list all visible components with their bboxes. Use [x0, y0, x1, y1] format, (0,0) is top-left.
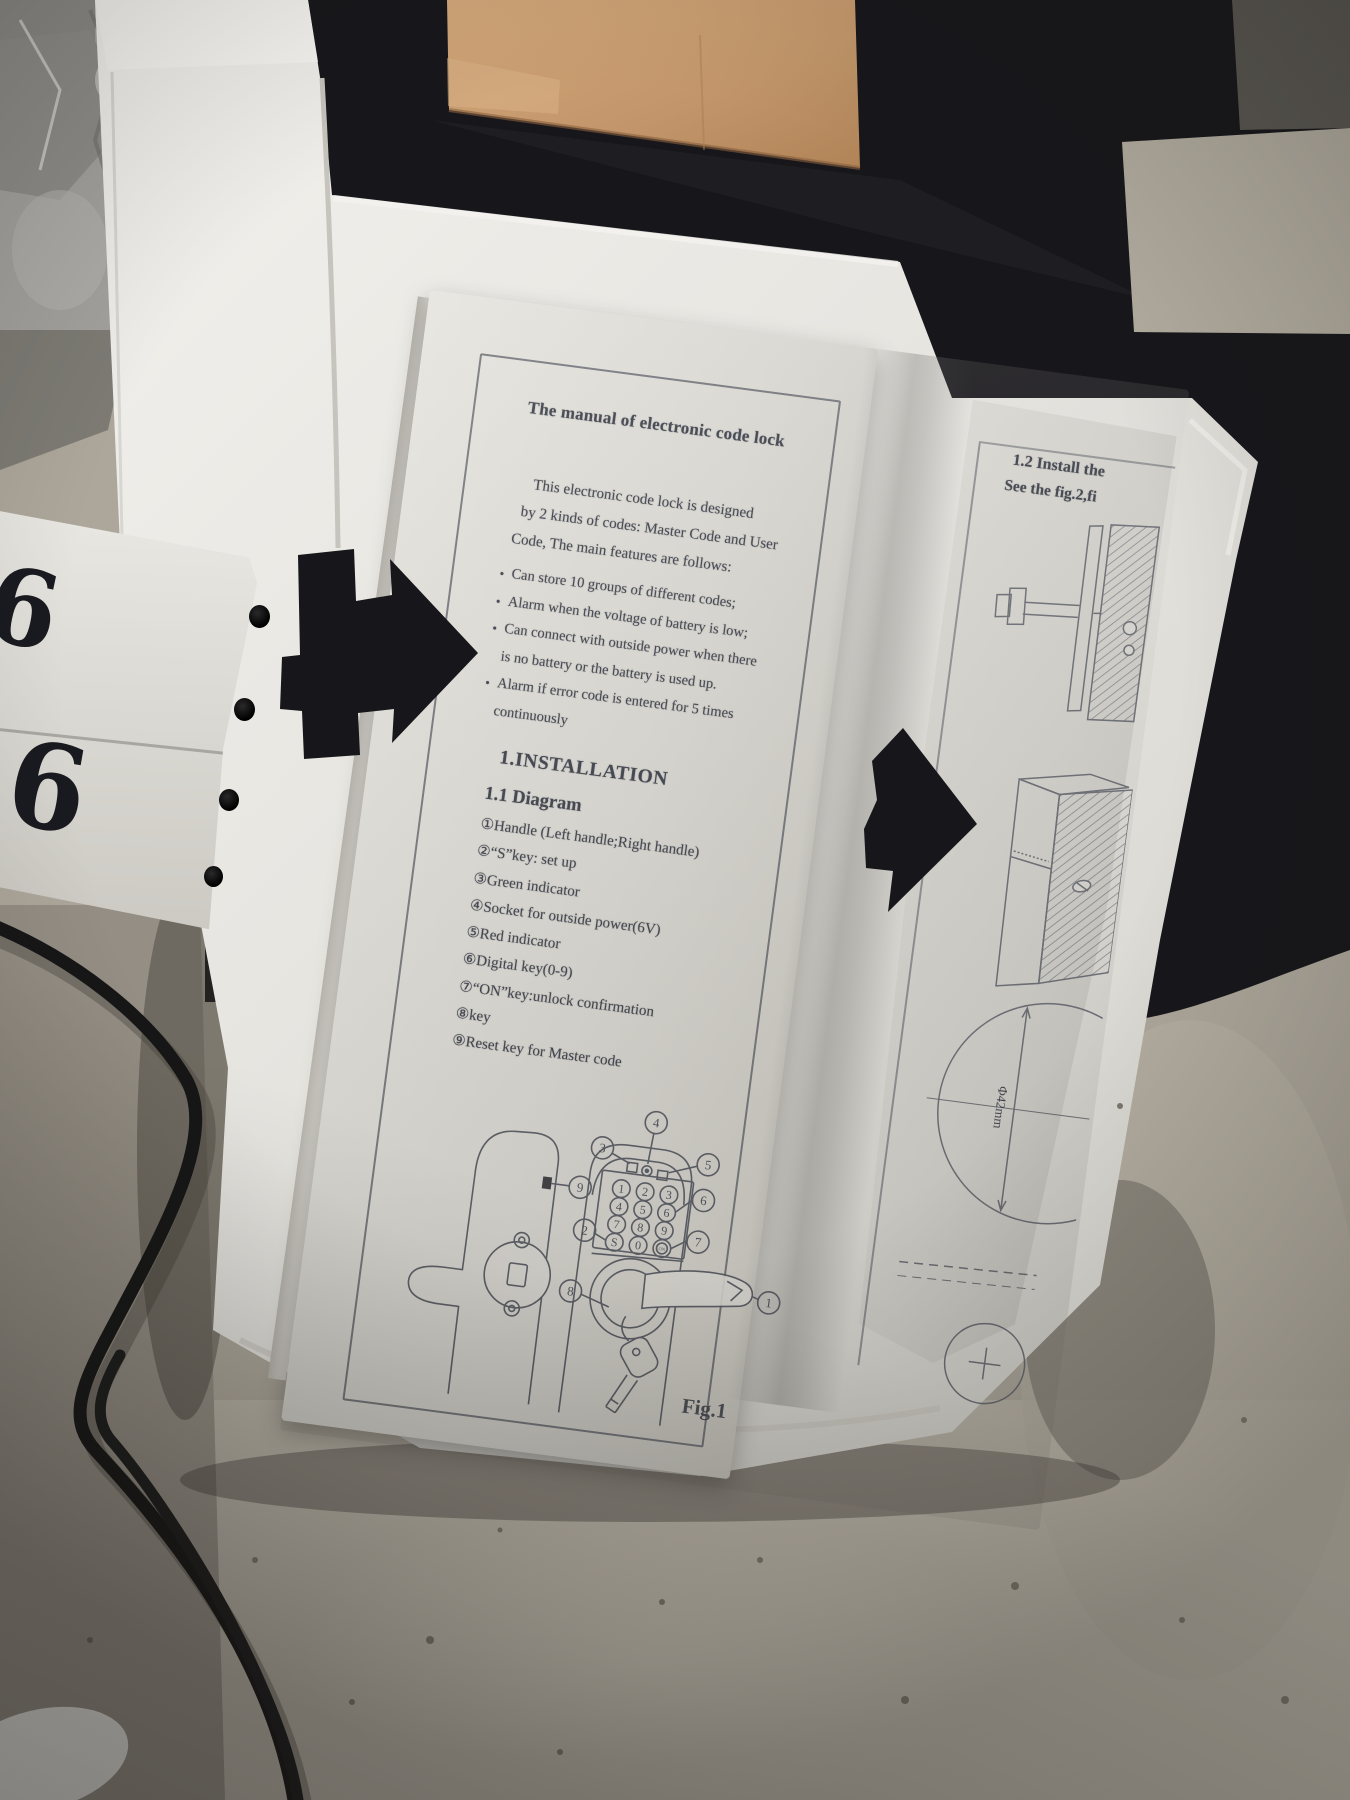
power-cable — [0, 895, 420, 1800]
handwritten-digit-bottom: 6 — [0, 724, 96, 853]
diagram-legend-list: ①Handle (Left handle;Right handle) ②“S”k… — [450, 811, 783, 1094]
hole-dot-4 — [204, 866, 223, 887]
key-s: S — [610, 1235, 618, 1250]
manual-title: The manual of electronic code lock — [498, 394, 814, 455]
callout-7: 7 — [694, 1234, 703, 1250]
spindle-section-figure — [982, 507, 1159, 725]
hole-dot-3 — [219, 789, 239, 811]
callout-9: 9 — [576, 1179, 584, 1195]
key — [617, 1334, 661, 1380]
handle-lever — [641, 1264, 755, 1322]
callout-4: 4 — [652, 1115, 661, 1131]
key-1: 1 — [617, 1181, 625, 1196]
key-0: 0 — [634, 1238, 642, 1253]
callout-5: 5 — [704, 1157, 712, 1173]
floor-top-right — [1232, 0, 1350, 130]
diagram-heading: 1.1 Diagram — [483, 784, 583, 818]
key-2: 2 — [641, 1184, 649, 1199]
key-8: 8 — [637, 1220, 645, 1235]
hole-dot-2 — [234, 698, 255, 721]
battery-circle-figure — [940, 1319, 1030, 1409]
key-blade — [605, 1373, 638, 1415]
installation-heading: 1.INSTALLATION — [498, 747, 669, 791]
dashed-guides — [897, 1258, 1036, 1294]
key-5: 5 — [639, 1202, 647, 1217]
door-frame-figure — [992, 765, 1134, 1000]
fig1-lock-diagram: 1 2 3 4 5 6 7 8 9 S 0 ON 4 — [364, 1072, 828, 1457]
key-4: 4 — [615, 1199, 623, 1214]
reset-key-mark — [542, 1176, 552, 1189]
callout-3: 3 — [598, 1140, 606, 1156]
key-9: 9 — [660, 1223, 668, 1238]
key-6: 6 — [663, 1205, 671, 1220]
callout-6: 6 — [699, 1193, 708, 1209]
callout-1: 1 — [764, 1295, 772, 1311]
feature-bullets: • Can store 10 groups of different codes… — [480, 560, 807, 764]
callout-2: 2 — [580, 1222, 588, 1238]
hole-dot-1 — [249, 605, 270, 628]
key-7: 7 — [613, 1217, 621, 1232]
backplate-hub — [480, 1238, 554, 1312]
fig1-label: Fig.1 — [681, 1394, 729, 1424]
photo-scene: 6 6 The manual of electronic code lock T… — [0, 0, 1350, 1800]
diameter-dimension-label: Φ42mm — [990, 1085, 1010, 1129]
green-indicator — [627, 1162, 638, 1172]
key-3: 3 — [665, 1188, 673, 1203]
handwritten-digit-top: 6 — [0, 550, 68, 667]
key-on: ON — [658, 1246, 666, 1252]
